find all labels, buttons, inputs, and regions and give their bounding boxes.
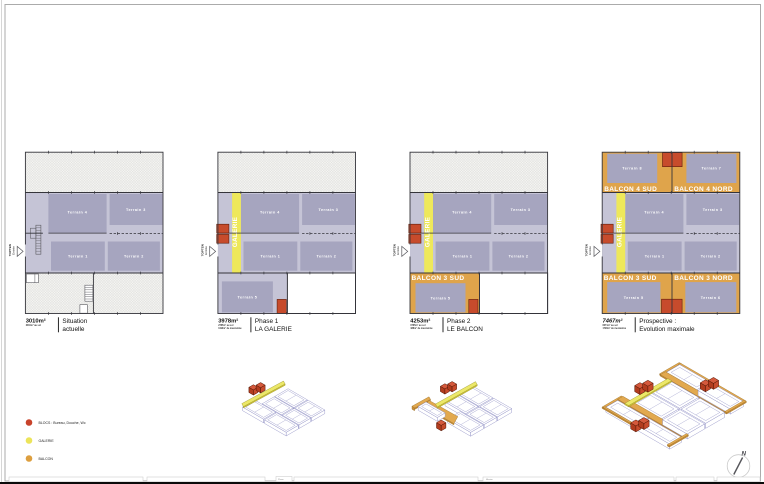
svg-text:Entrée: Entrée: [396, 246, 400, 255]
svg-text:BALCON 3 SUD: BALCON 3 SUD: [412, 275, 465, 282]
svg-text:Terrain 8: Terrain 8: [622, 167, 642, 171]
svg-text:Terrain 2: Terrain 2: [701, 255, 721, 259]
svg-text:Terrain 4: Terrain 4: [260, 211, 280, 215]
svg-text:Terrain 2: Terrain 2: [316, 255, 336, 259]
svg-text:GALERIE: GALERIE: [617, 216, 624, 247]
svg-text:BALCON 4 SUD: BALCON 4 SUD: [604, 186, 657, 193]
svg-text:Situation: Situation: [62, 318, 87, 325]
svg-text:Terrain 3: Terrain 3: [318, 208, 338, 212]
svg-text:Terrain 7: Terrain 7: [701, 167, 721, 171]
svg-text:BALCON 3 NORD: BALCON 3 NORD: [674, 275, 733, 282]
svg-text:Phase 1: Phase 1: [255, 318, 279, 325]
svg-text:Terrain 3: Terrain 3: [511, 208, 531, 212]
svg-text:Terrain 3: Terrain 3: [703, 208, 723, 212]
svg-text:4253m²: 4253m²: [410, 317, 430, 324]
svg-text:3978m²: 3978m²: [218, 317, 238, 324]
svg-text:Entrée: Entrée: [11, 246, 15, 255]
svg-text:Terrain 1: Terrain 1: [645, 255, 665, 259]
svg-text:actuelle: actuelle: [62, 326, 84, 333]
svg-text:Entrée: Entrée: [588, 246, 592, 255]
svg-text:BALCON 4 NORD: BALCON 4 NORD: [674, 186, 733, 193]
svg-text:Terrain 2: Terrain 2: [124, 255, 144, 259]
svg-text:Terrain 1: Terrain 1: [68, 255, 88, 259]
svg-text:LA GALERIE: LA GALERIE: [255, 326, 292, 333]
svg-text:GALERIE: GALERIE: [39, 439, 55, 443]
svg-text:Entrée: Entrée: [204, 246, 208, 255]
svg-text:Terrain 6: Terrain 6: [701, 296, 721, 300]
svg-text:Terrain 2: Terrain 2: [509, 255, 529, 259]
svg-text:Terrain 4: Terrain 4: [452, 211, 472, 215]
svg-text:Terrain 3: Terrain 3: [126, 208, 146, 212]
svg-text:BALCON: BALCON: [39, 457, 54, 461]
svg-text:Terrain 5: Terrain 5: [431, 297, 451, 301]
svg-text:Phase: Phase: [278, 479, 285, 481]
svg-text:Prospective :: Prospective :: [639, 318, 676, 325]
svg-text:Evolution maximale: Evolution maximale: [639, 326, 695, 333]
svg-text:3010m²: 3010m²: [26, 317, 46, 324]
svg-text:N: N: [742, 451, 747, 458]
svg-text:Mission: Mission: [486, 479, 493, 481]
svg-text:GALERIE: GALERIE: [232, 216, 239, 247]
svg-text:7467m²: 7467m²: [603, 317, 624, 324]
svg-text:Terrain 1: Terrain 1: [453, 255, 473, 259]
svg-text:Terrain 4: Terrain 4: [67, 211, 87, 215]
svg-text:Terrain 5: Terrain 5: [624, 296, 644, 300]
svg-text:GALERIE: GALERIE: [424, 216, 431, 247]
svg-text:LE BALCON: LE BALCON: [447, 326, 483, 333]
svg-text:Terrain 4: Terrain 4: [644, 211, 664, 215]
svg-text:Terrain 1: Terrain 1: [260, 255, 280, 259]
svg-text:BALCON 3 SUD: BALCON 3 SUD: [604, 275, 657, 282]
svg-text:Phase 2: Phase 2: [447, 318, 471, 325]
svg-text:BLOCS : Bureau, Douche, Wc: BLOCS : Bureau, Douche, Wc: [39, 421, 86, 425]
svg-text:Terrain 5: Terrain 5: [237, 296, 257, 300]
